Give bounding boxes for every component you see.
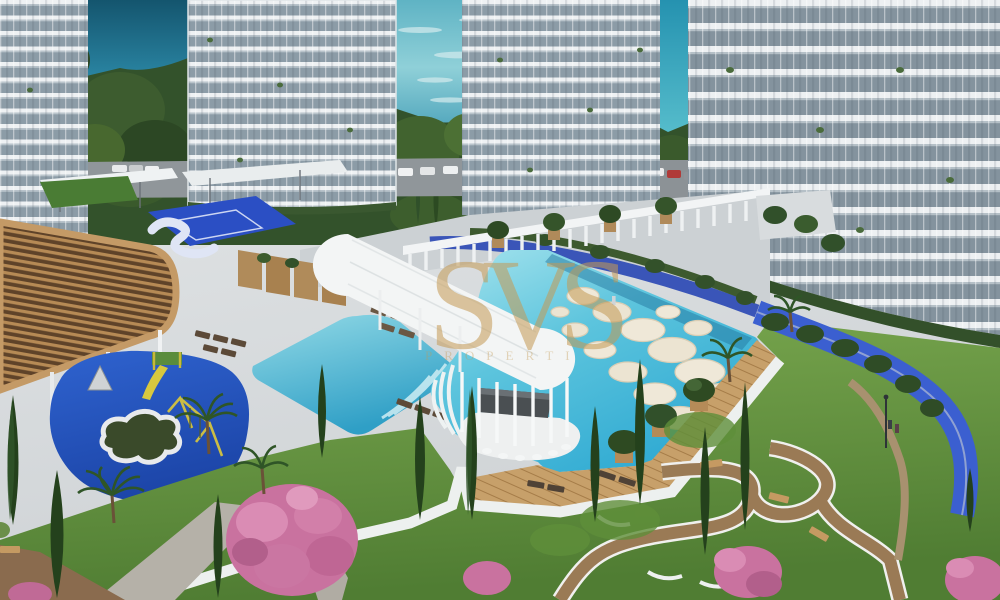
svg-text:PROPERTI: PROPERTI [425,348,582,363]
